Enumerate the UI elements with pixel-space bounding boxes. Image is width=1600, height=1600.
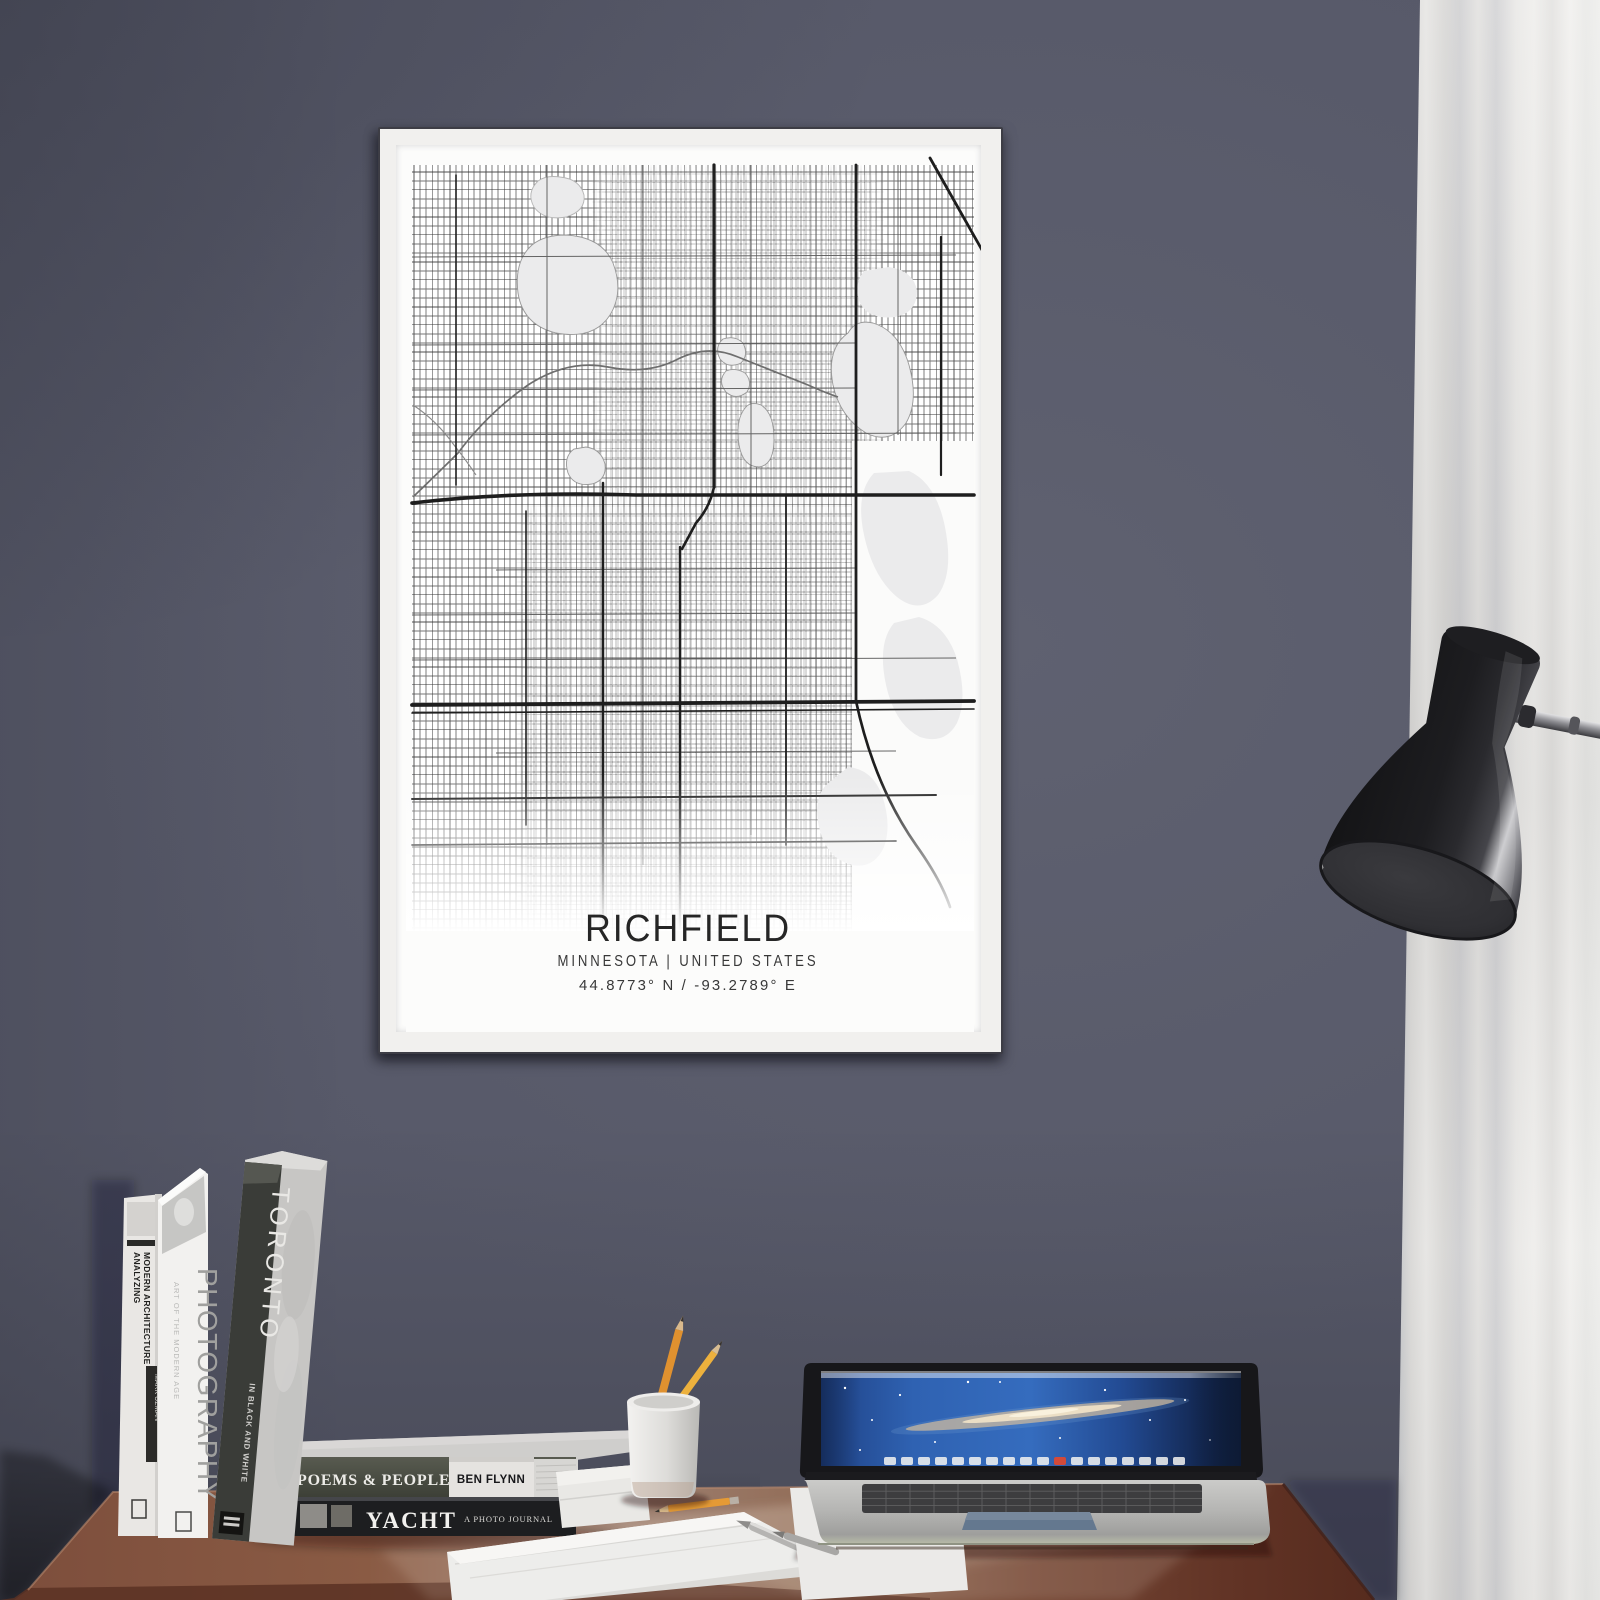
svg-text:MINNESOTA | UNITED STATES: MINNESOTA | UNITED STATES (558, 953, 819, 970)
svg-text:BEN FLYNN: BEN FLYNN (457, 1474, 525, 1486)
svg-text:YACHT: YACHT (366, 1508, 457, 1533)
svg-text:ANALYZING: ANALYZING (132, 1252, 142, 1304)
svg-text:MODERN ARCHITECTURE: MODERN ARCHITECTURE (142, 1252, 152, 1365)
svg-text:POEMS & PEOPLE: POEMS & PEOPLE (297, 1472, 450, 1489)
svg-text:ART OF THE MODERN AGE: ART OF THE MODERN AGE (172, 1282, 181, 1400)
svg-text:44.8773° N / -93.2789° E: 44.8773° N / -93.2789° E (579, 977, 797, 994)
svg-text:RICHFIELD: RICHFIELD (585, 908, 791, 950)
svg-text:A PHOTO JOURNAL: A PHOTO JOURNAL (464, 1514, 553, 1524)
